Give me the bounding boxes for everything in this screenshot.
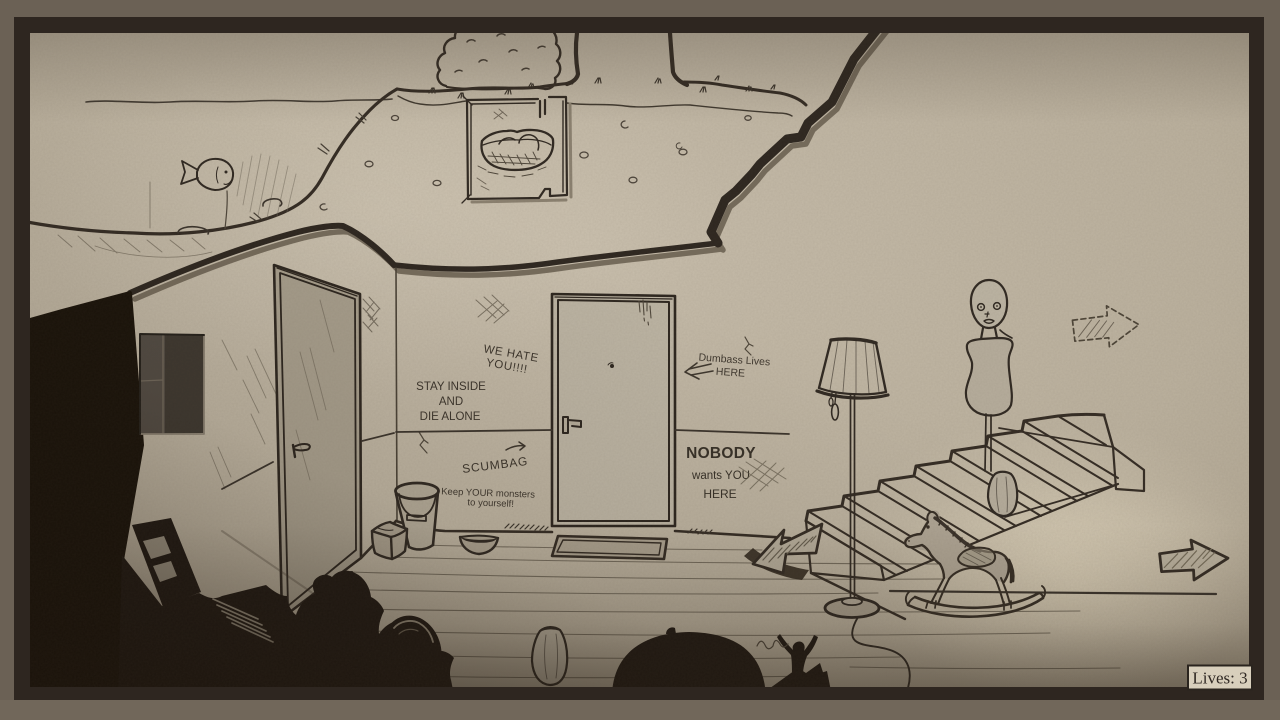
svg-text:Lives: 3: Lives: 3 (1192, 669, 1247, 688)
